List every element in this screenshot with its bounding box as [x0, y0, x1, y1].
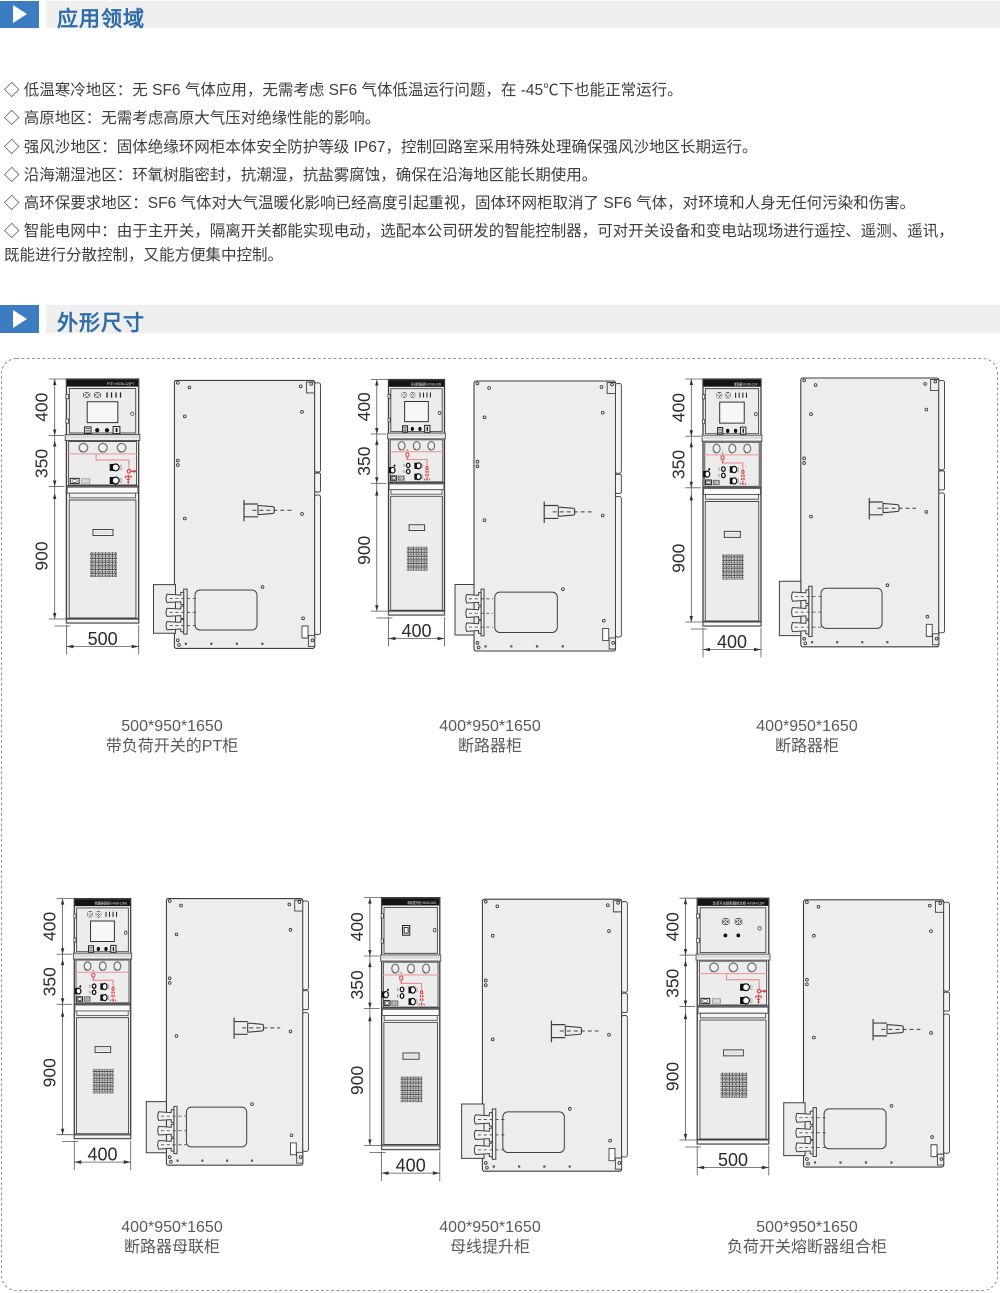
svg-text:900: 900 — [663, 1062, 683, 1091]
svg-text:400: 400 — [663, 912, 683, 941]
svg-text:400: 400 — [717, 632, 747, 652]
svg-text:断路器 HXGN-12/V: 断路器 HXGN-12/V — [734, 381, 758, 387]
svg-text:400: 400 — [668, 393, 688, 422]
svg-text:350: 350 — [40, 967, 60, 996]
svg-text:400: 400 — [354, 392, 374, 421]
svg-text:900: 900 — [354, 535, 374, 564]
svg-text:350: 350 — [32, 449, 52, 478]
svg-text:400: 400 — [32, 392, 52, 421]
svg-text:350: 350 — [668, 450, 688, 479]
svg-text:开关断路器柜 HXGN-12/B: 开关断路器柜 HXGN-12/B — [411, 381, 441, 387]
svg-text:负荷开关熔断器组合柜 HXGN-12/F: 负荷开关熔断器组合柜 HXGN-12/F — [713, 900, 765, 905]
svg-text:900: 900 — [347, 1066, 367, 1095]
svg-text:400: 400 — [40, 912, 60, 941]
svg-text:350: 350 — [663, 968, 683, 997]
svg-text:PTE HXGN-12(PT: PTE HXGN-12(PT — [107, 382, 135, 386]
svg-text:900: 900 — [668, 543, 688, 572]
svg-text:900: 900 — [32, 541, 52, 570]
svg-text:350: 350 — [347, 970, 367, 999]
svg-text:400: 400 — [396, 1156, 426, 1176]
svg-text:500: 500 — [718, 1150, 748, 1170]
svg-text:母线提升柜 HXGN-12/G: 母线提升柜 HXGN-12/G — [407, 900, 436, 906]
svg-text:400: 400 — [87, 1145, 117, 1165]
svg-text:500: 500 — [88, 629, 118, 649]
svg-text:350: 350 — [354, 446, 374, 475]
svg-text:400: 400 — [347, 912, 367, 941]
svg-text:400: 400 — [401, 621, 431, 641]
svg-text:900: 900 — [40, 1058, 60, 1087]
svg-text:断路器母联柜 HXGN-12/ML: 断路器母联柜 HXGN-12/ML — [95, 900, 128, 906]
